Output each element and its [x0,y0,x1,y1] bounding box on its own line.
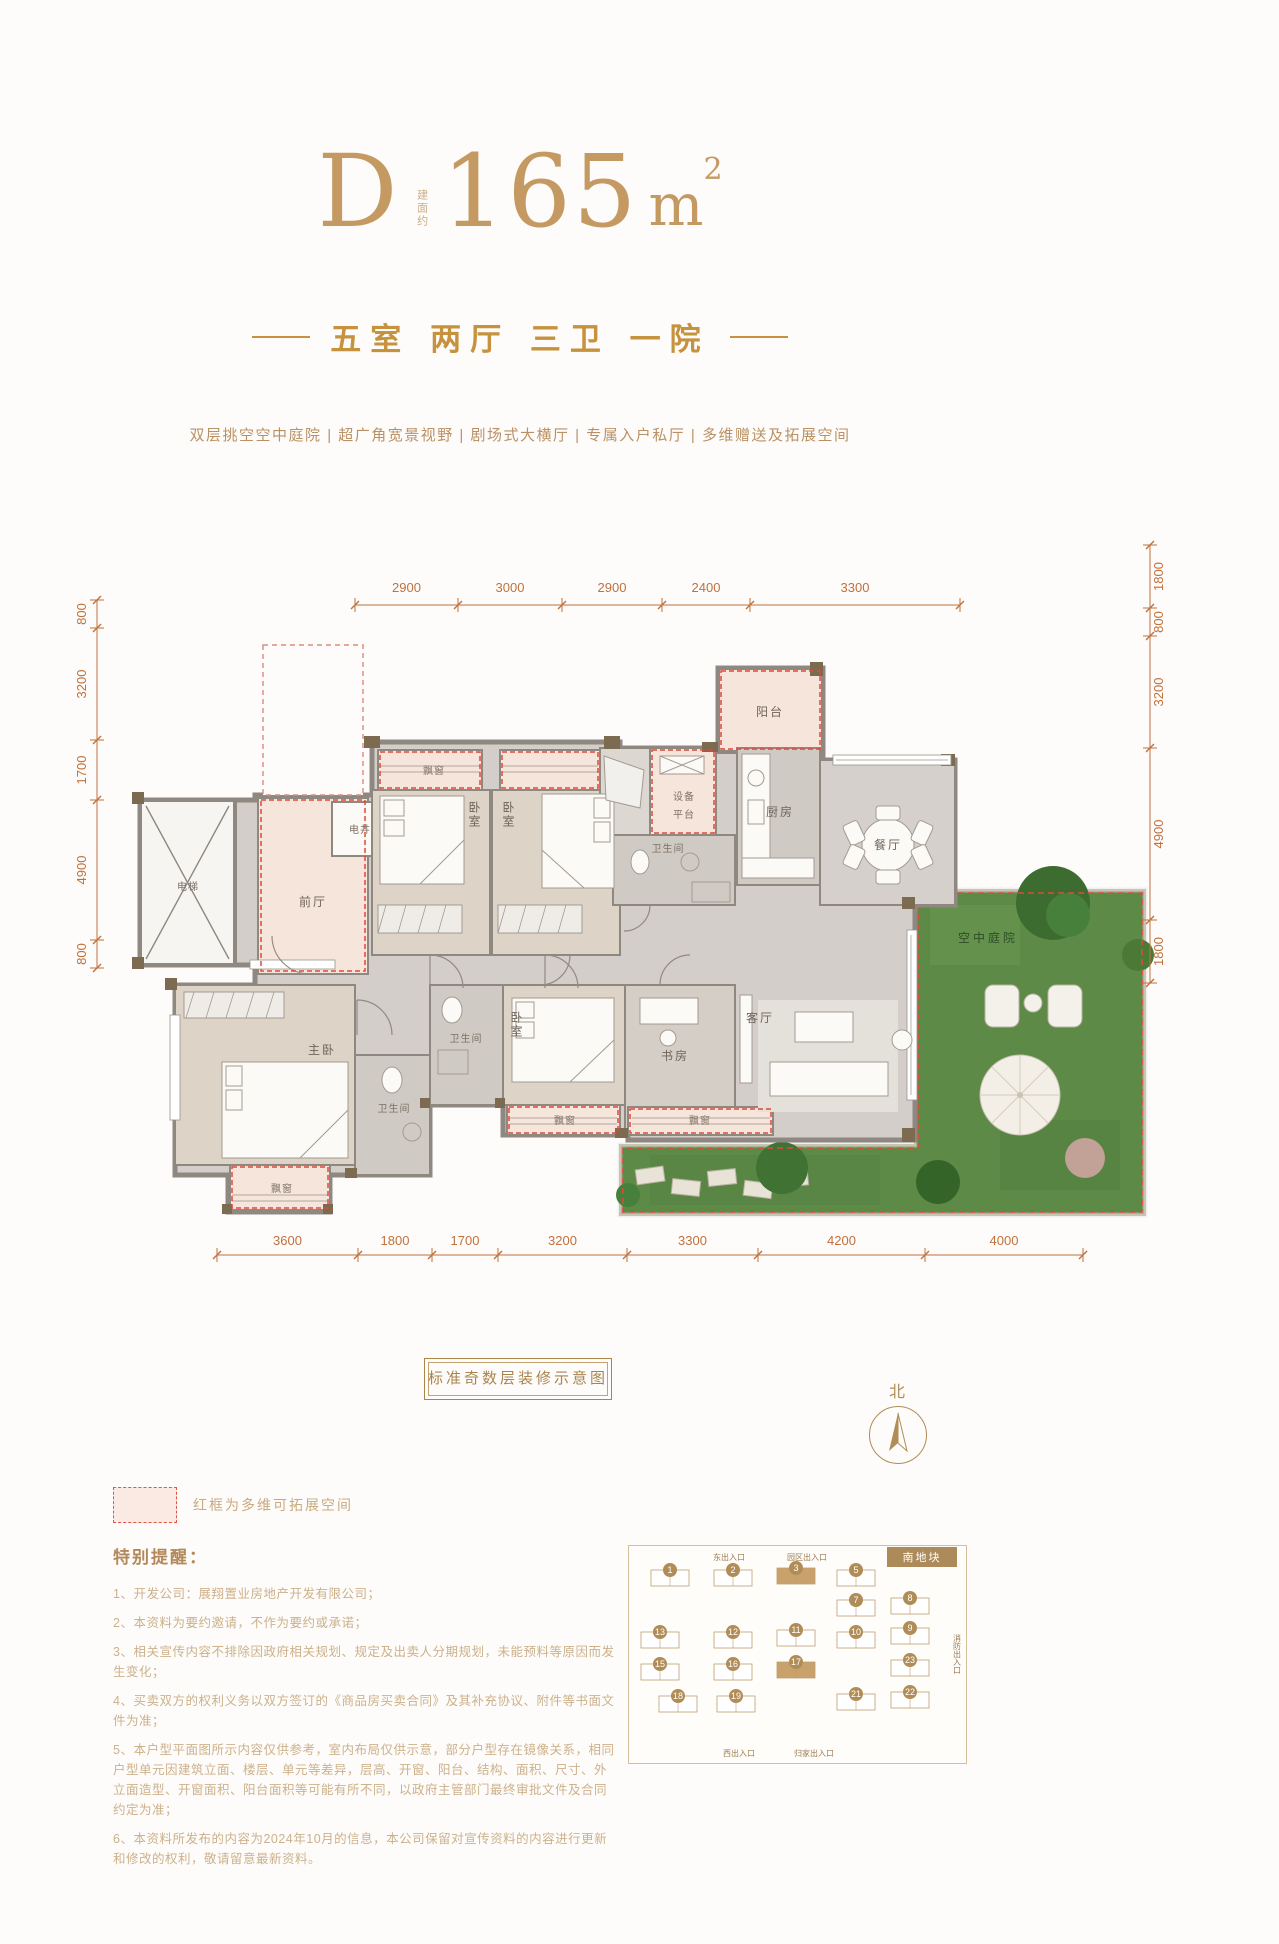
sitemap-building: 18 [659,1689,697,1712]
building-number: 15 [655,1659,665,1669]
floorplan-poster: D 建面约 165 m2 五室 两厅 三卫 一院 双层挑空空中庭院 | 超广角宽… [0,0,1279,1944]
room-label-bedroom-a: 卧室 [467,801,481,829]
dim-label-top: 2900 [598,580,627,595]
site-map-buildings: 1235781312111091516172318192122 [641,1561,929,1712]
room-label-elevator: 电梯 [177,880,199,893]
dim-label-bottom: 4200 [827,1233,856,1248]
room-label-equip-1: 设备 [673,790,695,803]
room-label-living: 客厅 [746,1010,774,1025]
note-item: 3、相关宣传内容不排除因政府相关规划、规定及出卖人分期规划，未能预料等原因而发生… [113,1642,618,1682]
building-number: 7 [853,1595,858,1605]
sitemap-building: 22 [891,1685,929,1708]
room-label-bay-d: 飘窗 [689,1114,711,1127]
building-number: 21 [851,1689,861,1699]
room-label-master: 主卧 [308,1043,336,1057]
building-number: 5 [853,1565,858,1575]
sitemap-building: 19 [717,1689,755,1712]
building-number: 8 [907,1593,912,1603]
room-label-study: 书房 [661,1048,689,1063]
entrance-bottom-2: 归家出入口 [794,1748,834,1758]
plan-type-badge: 标准奇数层装修示意图 [424,1358,612,1400]
building-number: 22 [905,1687,915,1697]
site-map-card: 南地块 东出入口 园区出入口 消防出入口 西出入口 归家出入口 12357813… [628,1545,967,1764]
entrance-top-2: 园区出入口 [787,1552,827,1562]
building-number: 23 [905,1655,915,1665]
room-label-shaft: 电井 [349,823,371,836]
sitemap-building: 11 [777,1623,815,1646]
legend-text: 红框为多维可拓展空间 [193,1495,353,1515]
room-label-bay-c: 飘窗 [554,1114,576,1127]
dim-label-bottom: 4000 [990,1233,1019,1248]
area-badge-label: 南地块 [903,1551,942,1564]
dim-label-top: 2400 [692,580,721,595]
dim-label-left: 3200 [74,670,89,699]
compass-icon [869,1406,927,1464]
room-label-kitchen: 厨房 [766,804,794,819]
building-number: 13 [655,1627,665,1637]
dim-label-top: 3300 [841,580,870,595]
sitemap-building: 8 [891,1591,929,1614]
notes-title: 特别提醒： [113,1543,618,1568]
dim-label-left: 1700 [74,756,89,785]
notes-list: 1、开发公司：展翔置业房地产开发有限公司；2、本资料为要约邀请，不作为要约或承诺… [113,1584,618,1869]
building-number: 12 [728,1627,738,1637]
building-number: 9 [907,1623,912,1633]
sitemap-building: 13 [641,1625,679,1648]
room-bath-2 [430,985,503,1105]
room-label-courtyard: 空中庭院 [958,930,1018,945]
dim-label-top: 2900 [392,580,421,595]
note-item: 1、开发公司：展翔置业房地产开发有限公司； [113,1584,618,1604]
entrance-right: 消防出入口 [953,1633,962,1674]
sitemap-building: 12 [714,1625,752,1648]
room-label-balcony: 阳台 [756,704,784,719]
sitemap-building: 10 [837,1625,875,1648]
building-number: 18 [673,1691,683,1701]
void-space [263,645,363,795]
sitemap-building: 16 [714,1657,752,1680]
note-item: 4、买卖双方的权利义务以双方签订的《商品房买卖合同》及其补充协议、附件等书面文件… [113,1691,618,1731]
dim-label-bottom: 1800 [381,1233,410,1248]
legend-red-frame-icon [113,1487,177,1523]
parasol [980,1055,1060,1135]
dim-label-left: 800 [74,943,89,965]
building-number: 17 [791,1657,801,1667]
dim-label-left: 800 [74,603,89,625]
room-label-bedroom-c: 卧室 [509,1011,523,1039]
sitemap-building: 1 [651,1563,689,1586]
north-indicator: 北 [866,1378,930,1464]
room-label-bedroom-b: 卧室 [501,801,515,829]
room-label-front-hall: 前厅 [299,894,327,909]
room-label-dining: 餐厅 [874,837,902,852]
building-number: 2 [730,1565,735,1575]
sitemap-building: 7 [837,1593,875,1616]
entrance-bottom-1: 西出入口 [723,1748,755,1758]
building-number: 10 [851,1627,861,1637]
dim-label-bottom: 1700 [451,1233,480,1248]
dim-label-bottom: 3300 [678,1233,707,1248]
dim-label-left: 4900 [74,856,89,885]
sitemap-building: 21 [837,1687,875,1710]
room-label-equip-2: 平台 [673,808,695,821]
dim-label-right: 4900 [1151,820,1166,849]
dim-label-bottom: 3200 [548,1233,577,1248]
building-number: 16 [728,1659,738,1669]
sitemap-building: 3 [777,1561,815,1584]
sitemap-building: 2 [714,1563,752,1586]
note-item: 5、本户型平面图所示内容仅供参考，室内布局仅供示意，部分户型存在镜像关系，相同户… [113,1740,618,1820]
sitemap-building: 9 [891,1621,929,1644]
room-label-bath-1: 卫生间 [378,1102,411,1115]
sitemap-building: 23 [891,1653,929,1676]
building-number: 1 [667,1565,672,1575]
bay-window-b [500,750,600,790]
note-item: 2、本资料为要约邀请，不作为要约或承诺； [113,1613,618,1633]
building-number: 11 [791,1625,800,1635]
sitemap-building: 17 [777,1655,815,1678]
dim-label-right: 1800 [1151,937,1166,966]
room-label-bath-3: 卫生间 [652,842,685,855]
north-label: 北 [866,1378,930,1402]
room-label-bay-master: 飘窗 [271,1182,293,1195]
room-label-bath-2: 卫生间 [450,1032,483,1045]
entrance-top-1: 东出入口 [713,1552,745,1562]
legend: 红框为多维可拓展空间 [113,1487,353,1523]
dim-label-right: 1800 [1151,562,1166,591]
sitemap-building: 5 [837,1563,875,1586]
dim-label-bottom: 3600 [273,1233,302,1248]
special-notes: 特别提醒： 1、开发公司：展翔置业房地产开发有限公司；2、本资料为要约邀请，不作… [113,1543,618,1878]
dim-label-right: 3200 [1151,678,1166,707]
note-item: 6、本资料所发布的内容为2024年10月的信息，本公司保留对宣传资料的内容进行更… [113,1829,618,1869]
building-number: 19 [731,1691,741,1701]
dim-label-right: 800 [1151,611,1166,633]
room-label-bay-a: 飘窗 [423,764,445,777]
building-number: 3 [793,1563,798,1573]
sitemap-building: 15 [641,1657,679,1680]
dim-label-top: 3000 [496,580,525,595]
